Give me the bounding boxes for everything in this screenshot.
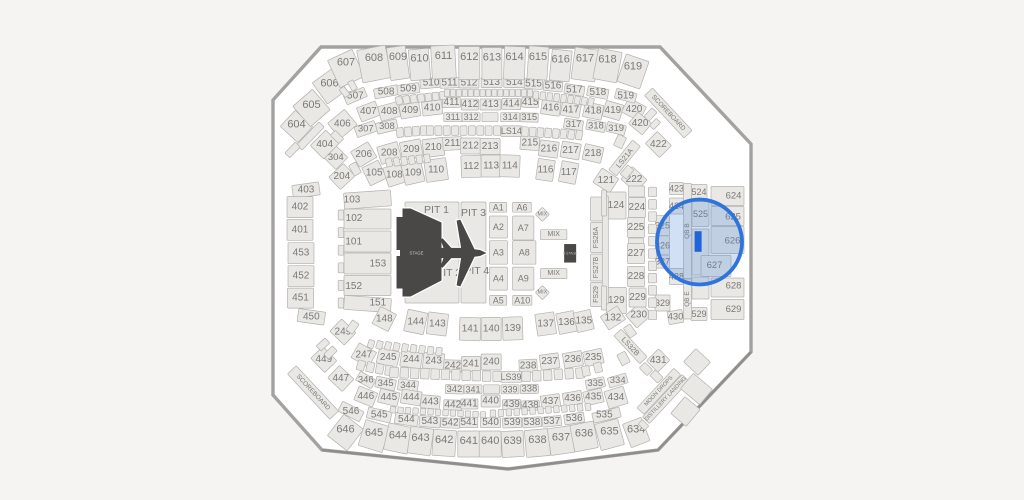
svg-text:135: 135: [575, 316, 592, 327]
svg-text:423: 423: [669, 184, 684, 194]
svg-text:418: 418: [585, 106, 602, 117]
svg-text:404: 404: [316, 139, 333, 150]
svg-text:402: 402: [292, 202, 309, 213]
svg-text:MIX: MIX: [538, 211, 548, 217]
svg-text:542: 542: [442, 418, 459, 429]
svg-text:224: 224: [629, 202, 646, 213]
svg-text:217: 217: [562, 145, 579, 156]
svg-text:611: 611: [435, 50, 453, 62]
svg-text:519: 519: [617, 90, 634, 101]
svg-text:430: 430: [668, 312, 684, 323]
svg-text:639: 639: [504, 435, 522, 447]
svg-text:103: 103: [344, 195, 361, 206]
svg-text:409: 409: [402, 105, 419, 116]
svg-text:148: 148: [376, 314, 393, 325]
svg-text:A6: A6: [516, 202, 527, 212]
svg-text:641: 641: [460, 435, 478, 447]
svg-text:A4: A4: [493, 274, 504, 284]
svg-text:A1: A1: [493, 202, 504, 212]
svg-text:543: 543: [421, 416, 438, 427]
svg-text:129: 129: [608, 295, 625, 306]
svg-text:227: 227: [628, 248, 645, 259]
svg-text:113: 113: [483, 161, 499, 172]
svg-text:640: 640: [481, 435, 499, 447]
svg-text:315: 315: [521, 112, 537, 123]
svg-text:339: 339: [502, 384, 517, 394]
svg-text:445: 445: [380, 392, 397, 403]
svg-text:617: 617: [576, 53, 594, 65]
svg-text:152: 152: [345, 281, 362, 292]
svg-text:140: 140: [483, 324, 500, 335]
svg-text:646: 646: [336, 424, 354, 436]
svg-text:615: 615: [529, 51, 547, 63]
svg-text:452: 452: [293, 271, 310, 282]
svg-text:416: 416: [542, 103, 559, 114]
svg-text:FS27B: FS27B: [593, 256, 600, 278]
svg-text:453: 453: [293, 248, 310, 259]
svg-text:436: 436: [564, 393, 581, 404]
svg-text:304: 304: [328, 152, 344, 163]
svg-text:444: 444: [403, 392, 420, 403]
svg-text:509: 509: [400, 84, 417, 95]
svg-text:637: 637: [552, 432, 570, 444]
svg-text:A9: A9: [518, 274, 529, 284]
svg-text:206: 206: [355, 149, 372, 160]
svg-text:605: 605: [302, 99, 320, 111]
svg-text:342: 342: [446, 384, 462, 395]
svg-text:435: 435: [585, 392, 602, 403]
svg-text:317: 317: [566, 119, 582, 130]
svg-text:539: 539: [504, 417, 521, 428]
svg-text:443: 443: [422, 397, 439, 408]
svg-text:308: 308: [379, 121, 395, 132]
svg-text:PIT 1: PIT 1: [424, 204, 449, 216]
svg-text:A8: A8: [519, 247, 530, 257]
svg-text:238: 238: [520, 361, 537, 372]
svg-text:440: 440: [482, 396, 499, 407]
svg-text:544: 544: [398, 414, 415, 425]
svg-text:151: 151: [369, 298, 386, 309]
svg-text:117: 117: [561, 167, 577, 178]
svg-text:616: 616: [552, 54, 570, 66]
svg-text:517: 517: [566, 85, 583, 96]
svg-text:235: 235: [585, 352, 602, 363]
svg-text:401: 401: [292, 224, 309, 235]
svg-text:A7: A7: [518, 223, 529, 233]
svg-text:311: 311: [446, 112, 460, 122]
svg-text:318: 318: [588, 121, 604, 132]
svg-text:137: 137: [537, 319, 554, 330]
svg-text:609: 609: [389, 51, 407, 63]
svg-text:110: 110: [428, 165, 444, 176]
svg-text:245: 245: [380, 352, 397, 363]
svg-text:312: 312: [464, 112, 479, 122]
svg-text:524: 524: [691, 187, 706, 197]
svg-text:225: 225: [628, 222, 645, 233]
svg-text:338: 338: [521, 384, 537, 395]
svg-text:406: 406: [334, 119, 351, 130]
svg-text:610: 610: [410, 53, 428, 65]
svg-text:247: 247: [355, 350, 372, 361]
svg-text:604: 604: [287, 119, 305, 131]
svg-text:535: 535: [596, 409, 613, 420]
svg-text:507: 507: [347, 91, 364, 102]
svg-text:334: 334: [610, 375, 626, 386]
svg-text:450: 450: [303, 311, 320, 322]
svg-text:A10: A10: [514, 295, 530, 305]
svg-text:624: 624: [726, 191, 742, 202]
svg-text:345: 345: [378, 378, 394, 389]
svg-text:536: 536: [566, 413, 583, 424]
svg-text:FS26A: FS26A: [593, 226, 600, 248]
svg-text:215: 215: [521, 138, 538, 149]
svg-text:516: 516: [545, 81, 562, 92]
svg-text:143: 143: [429, 319, 446, 330]
svg-text:210: 210: [425, 142, 442, 153]
svg-text:451: 451: [292, 293, 309, 304]
svg-text:410: 410: [424, 103, 441, 114]
svg-text:218: 218: [585, 148, 602, 159]
svg-text:208: 208: [381, 148, 398, 159]
svg-text:116: 116: [538, 165, 554, 176]
svg-text:540: 540: [482, 417, 499, 428]
svg-text:114: 114: [502, 161, 518, 172]
svg-text:QB E: QB E: [684, 291, 691, 307]
svg-text:230: 230: [630, 310, 647, 321]
svg-text:211: 211: [444, 138, 460, 149]
svg-text:403: 403: [298, 185, 315, 196]
svg-text:335: 335: [587, 378, 603, 389]
svg-text:607: 607: [337, 57, 355, 69]
svg-text:108: 108: [386, 170, 403, 181]
svg-text:413: 413: [482, 99, 499, 110]
svg-text:346: 346: [358, 375, 374, 386]
svg-text:LS39: LS39: [500, 372, 521, 382]
svg-text:236: 236: [565, 354, 582, 365]
svg-text:644: 644: [389, 430, 407, 442]
svg-text:237: 237: [541, 356, 558, 367]
svg-text:537: 537: [543, 416, 560, 427]
svg-text:243: 243: [425, 356, 442, 367]
svg-text:442: 442: [444, 400, 461, 411]
svg-text:417: 417: [562, 104, 579, 115]
svg-text:636: 636: [575, 428, 593, 440]
svg-text:619: 619: [624, 61, 642, 73]
svg-text:446: 446: [357, 391, 374, 402]
svg-text:216: 216: [540, 144, 557, 155]
svg-text:B STAGE: B STAGE: [563, 251, 578, 255]
svg-text:412: 412: [462, 99, 479, 110]
svg-text:109: 109: [405, 168, 422, 179]
svg-text:643: 643: [411, 432, 429, 444]
svg-text:618: 618: [598, 54, 616, 66]
svg-text:407: 407: [360, 106, 377, 117]
svg-text:141: 141: [462, 324, 479, 335]
svg-text:139: 139: [504, 323, 521, 334]
svg-text:241: 241: [463, 359, 480, 370]
svg-text:101: 101: [345, 237, 362, 248]
svg-text:437: 437: [542, 396, 559, 407]
svg-text:629: 629: [726, 304, 742, 315]
svg-text:431: 431: [650, 355, 667, 366]
svg-text:A3: A3: [493, 247, 504, 257]
svg-text:614: 614: [505, 51, 523, 63]
svg-text:FS29: FS29: [593, 286, 600, 303]
svg-text:A2: A2: [493, 222, 504, 232]
svg-text:PIT 3: PIT 3: [461, 207, 486, 219]
svg-text:422: 422: [650, 139, 667, 150]
svg-text:MIX: MIX: [547, 270, 560, 277]
svg-text:341: 341: [465, 384, 480, 394]
svg-text:112: 112: [463, 161, 479, 172]
svg-text:447: 447: [332, 373, 349, 384]
svg-text:508: 508: [378, 86, 395, 97]
svg-text:538: 538: [524, 417, 541, 428]
svg-text:136: 136: [558, 317, 575, 328]
svg-text:STAGE: STAGE: [410, 251, 424, 256]
svg-text:434: 434: [608, 392, 625, 403]
svg-text:612: 612: [460, 51, 478, 63]
svg-text:511: 511: [442, 78, 458, 89]
svg-text:515: 515: [525, 79, 542, 90]
svg-text:228: 228: [628, 271, 645, 282]
svg-text:319: 319: [608, 123, 624, 134]
svg-text:209: 209: [403, 144, 420, 155]
svg-text:613: 613: [483, 52, 501, 64]
svg-text:642: 642: [435, 434, 453, 446]
svg-text:645: 645: [365, 427, 383, 439]
svg-text:240: 240: [483, 357, 500, 368]
svg-text:441: 441: [461, 399, 478, 410]
svg-text:638: 638: [528, 434, 546, 446]
svg-text:A5: A5: [493, 295, 504, 305]
svg-text:420: 420: [632, 118, 649, 129]
svg-text:132: 132: [605, 313, 622, 324]
svg-text:213: 213: [482, 141, 499, 152]
svg-text:212: 212: [462, 141, 479, 152]
svg-text:628: 628: [726, 281, 742, 292]
svg-text:518: 518: [589, 87, 606, 98]
svg-text:144: 144: [407, 317, 424, 328]
svg-text:LS14: LS14: [501, 126, 522, 136]
svg-text:529: 529: [691, 309, 706, 319]
svg-text:244: 244: [403, 354, 420, 365]
svg-text:635: 635: [600, 426, 618, 438]
svg-text:314: 314: [503, 112, 518, 122]
svg-text:204: 204: [334, 171, 351, 182]
svg-text:419: 419: [605, 105, 622, 116]
svg-text:MIX: MIX: [538, 290, 548, 296]
svg-text:414: 414: [503, 99, 520, 110]
svg-text:105: 105: [366, 168, 383, 179]
svg-text:102: 102: [346, 213, 363, 224]
svg-text:408: 408: [381, 106, 398, 117]
svg-text:153: 153: [369, 258, 386, 269]
svg-text:229: 229: [629, 292, 646, 303]
svg-text:124: 124: [608, 200, 625, 211]
svg-text:121: 121: [597, 175, 614, 186]
svg-text:329: 329: [655, 298, 670, 308]
svg-text:608: 608: [365, 52, 383, 64]
svg-text:307: 307: [358, 124, 374, 135]
svg-text:545: 545: [371, 410, 388, 421]
svg-text:MIX: MIX: [547, 231, 560, 238]
svg-text:541: 541: [460, 417, 477, 428]
